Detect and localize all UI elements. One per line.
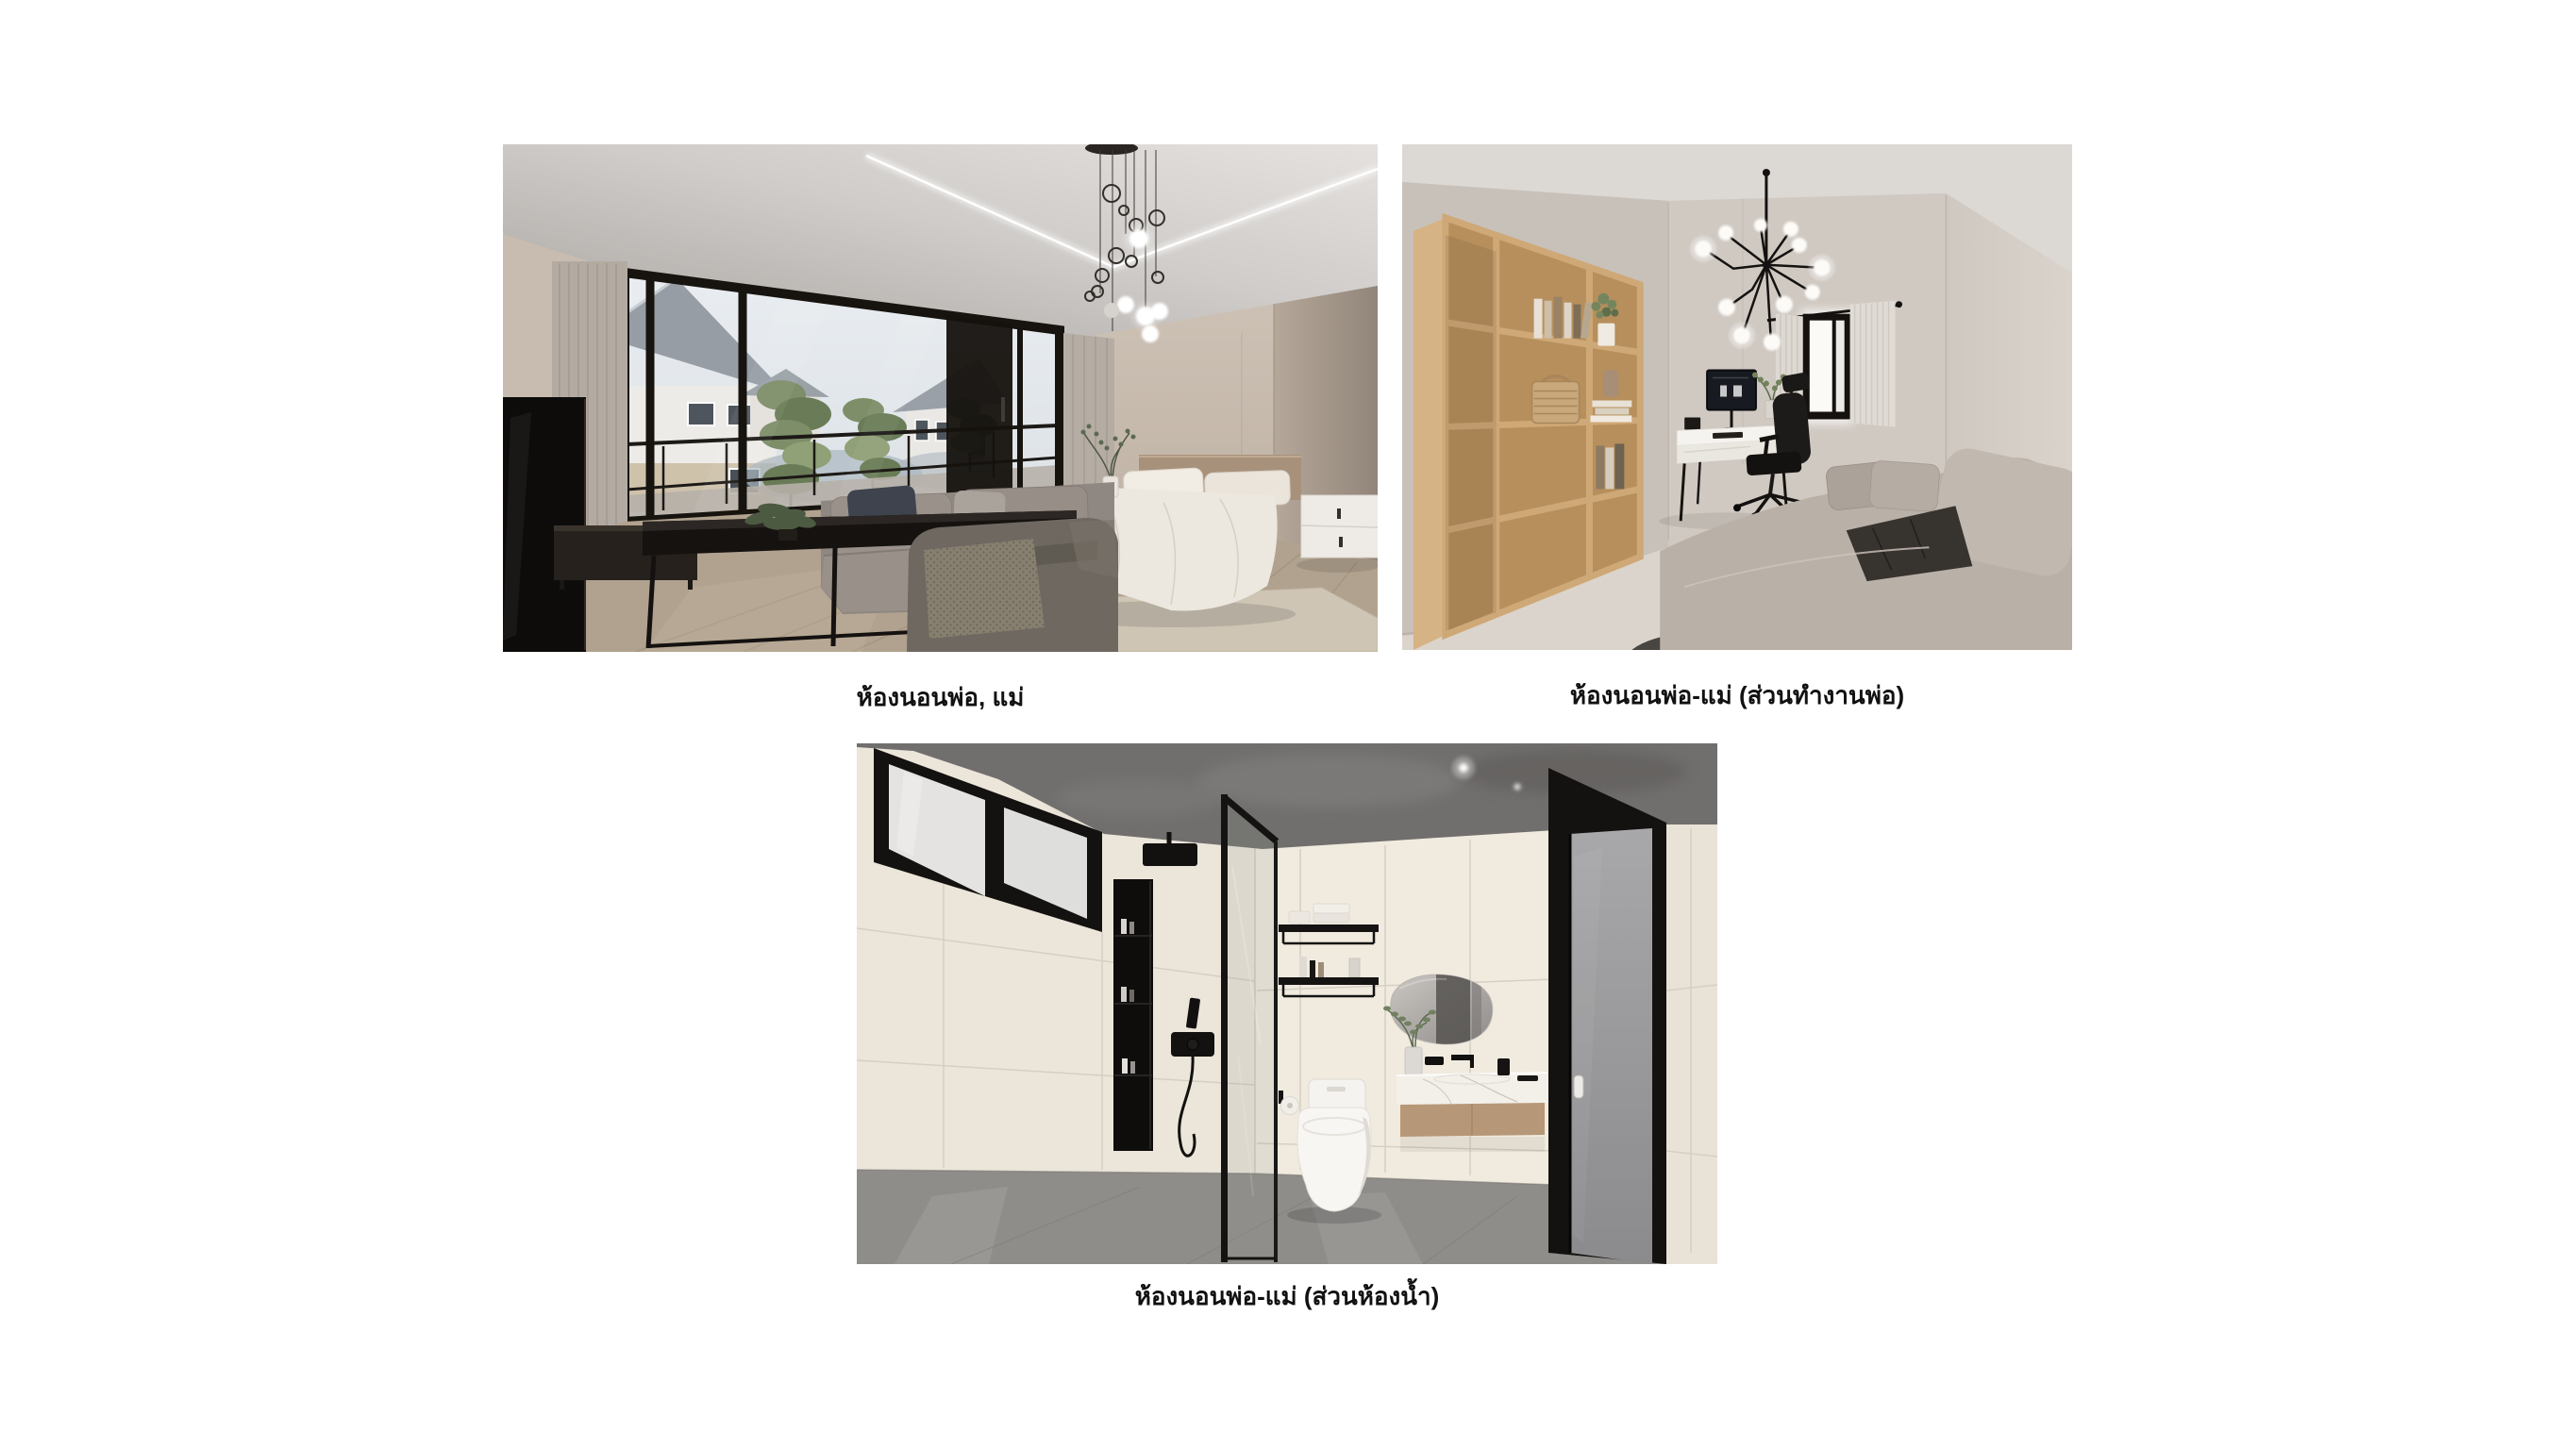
- render-master-bedroom-work-area: [1402, 144, 2072, 650]
- work-area-illustration: [1402, 144, 2072, 650]
- armchair: [907, 518, 1118, 652]
- shower-niche: [1113, 879, 1153, 1151]
- nightstand: [1296, 495, 1378, 573]
- figure-master-bedroom-work-area: ห้องนอนพ่อ-แม่ (ส่วนทำงานพ่อ): [1402, 144, 2072, 712]
- shelf-books-lower: [1596, 443, 1624, 489]
- bathroom-illustration: [857, 743, 1717, 1264]
- downlight: [1514, 784, 1521, 791]
- curtain-right: [1850, 301, 1896, 427]
- window: [1803, 314, 1850, 420]
- glass-partition: [1221, 794, 1277, 1262]
- presentation-sheet: ห้องนอนพ่อ, แม่: [0, 0, 2576, 1449]
- tv: [503, 397, 586, 652]
- door: [1548, 768, 1717, 1264]
- shelf-book-stack: [1590, 400, 1631, 422]
- caption-work-area: ห้องนอนพ่อ-แม่ (ส่วนทำงานพ่อ): [1402, 679, 2072, 712]
- figure-master-bedroom-bathroom: ห้องนอนพ่อ-แม่ (ส่วนห้องน้ำ): [857, 743, 1717, 1313]
- render-master-bedroom-bathroom: [857, 743, 1717, 1264]
- render-master-bedroom: [503, 144, 1378, 652]
- soap-dish: [1517, 1075, 1538, 1081]
- figure-master-bedroom: ห้องนอนพ่อ, แม่: [503, 144, 1378, 714]
- shelf-vase: [1603, 371, 1618, 397]
- master-bedroom-illustration: [503, 144, 1378, 652]
- door-handle: [1574, 1075, 1583, 1098]
- caption-bathroom: ห้องนอนพ่อ-แม่ (ส่วนห้องน้ำ): [857, 1280, 1717, 1313]
- caption-master-bedroom: ห้องนอนพ่อ, แม่: [503, 681, 1378, 714]
- sofa-pillow: [1869, 460, 1940, 512]
- woven-basket: [1532, 376, 1580, 424]
- desk-lamp: [1684, 417, 1700, 429]
- soap-bottle: [1497, 1058, 1510, 1075]
